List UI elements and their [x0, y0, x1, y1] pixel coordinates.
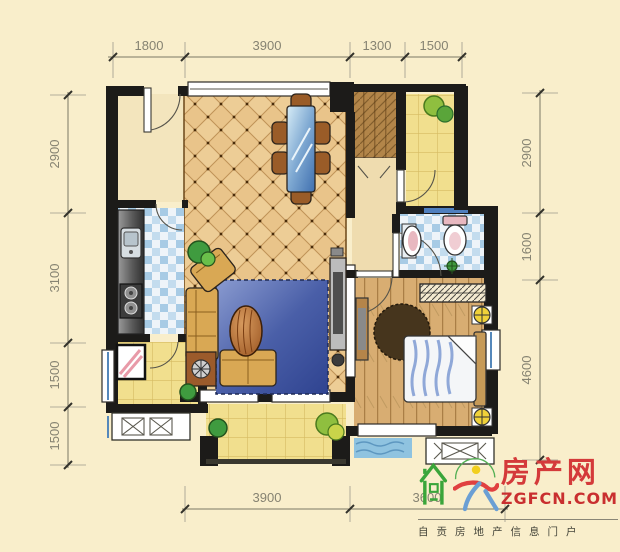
site-name: 房产网 [501, 458, 618, 488]
tv-cabinet-living [330, 248, 346, 366]
dim-label: 3100 [47, 264, 62, 293]
ac-unit-symbol [108, 413, 190, 440]
sink-icon [121, 228, 141, 258]
house-icon [418, 456, 449, 514]
dim-label: 1300 [363, 38, 392, 53]
balcony-railing [206, 459, 346, 464]
dining-table [287, 106, 315, 192]
sink-icon [402, 224, 421, 258]
dim-label: 1500 [47, 422, 62, 451]
bed [404, 332, 486, 406]
site-tagline: 自贡房地产信息门户 [418, 519, 618, 539]
washing-machine-icon [117, 345, 145, 379]
tv-cabinet-bedroom [356, 298, 368, 360]
site-url: ZGFCN.COM [501, 489, 618, 508]
bedroom-bay-glass [354, 438, 412, 458]
stove-icon [120, 284, 142, 318]
plant-icon [209, 419, 227, 437]
dim-label: 1500 [47, 361, 62, 390]
coffee-table [230, 306, 262, 356]
plant-icon [180, 384, 196, 400]
dim-label: 3900 [253, 38, 282, 53]
wardrobe [420, 284, 486, 302]
laundry-window [102, 350, 114, 402]
side-table [186, 352, 216, 386]
dim-label: 1600 [519, 233, 534, 262]
room-hallway [352, 158, 396, 276]
toilet-icon [443, 216, 467, 255]
room-stairwell [354, 92, 396, 158]
site-logo: 房产网 ZGFCN.COM 自贡房地产信息门户 [418, 456, 618, 550]
dim-label: 1500 [420, 38, 449, 53]
cloud-swirl-icon [453, 456, 499, 516]
dim-label: 2900 [47, 140, 62, 169]
dim-label: 1800 [135, 38, 164, 53]
lamp-symbol [474, 409, 490, 425]
kitchen-fixtures [118, 210, 144, 334]
dim-label: 4600 [519, 356, 534, 385]
dim-label: 2900 [519, 139, 534, 168]
bedroom-south-window [358, 424, 436, 436]
lamp-symbol [474, 307, 490, 323]
dim-label: 3900 [253, 490, 282, 505]
